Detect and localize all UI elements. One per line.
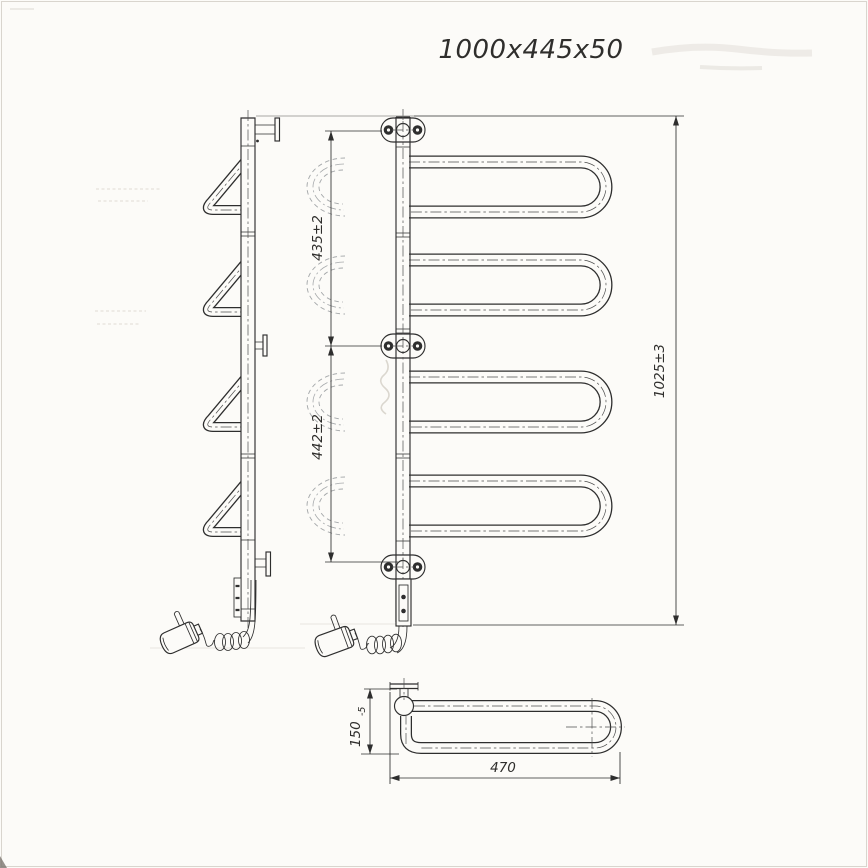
side-wall-stud-bottom <box>255 552 271 576</box>
dim-label-lower-span: 442±2 <box>310 414 326 460</box>
technical-drawing-canvas: 1000x445x50 <box>0 0 868 868</box>
front-power-cord <box>355 626 407 654</box>
scan-artifacts <box>0 2 867 868</box>
phantom-swing-arcs <box>307 158 345 535</box>
heater-control-box <box>396 579 411 626</box>
side-view <box>152 110 280 656</box>
scanned-drawing-page: 1000x445x50 <box>0 0 868 868</box>
towel-loop-2 <box>409 260 606 310</box>
heating-element <box>234 578 241 617</box>
dim-label-depth: 150 <box>348 721 364 747</box>
faint-scribble <box>381 360 389 414</box>
power-plug-icon <box>308 610 360 659</box>
top-view <box>390 678 625 757</box>
dim-label-overall-height: 1025±3 <box>652 344 668 398</box>
drawing-title: 1000x445x50 <box>438 35 623 65</box>
scan-edge-frame <box>2 2 867 867</box>
side-wall-stud-middle <box>255 335 267 356</box>
side-wall-stud-top <box>255 118 280 142</box>
dim-label-length: 470 <box>490 760 516 776</box>
dim-label-upper-span: 435±2 <box>310 215 326 261</box>
front-view <box>307 109 606 659</box>
top-view-loop <box>406 698 625 757</box>
dim-depth: 150 -5 <box>348 689 399 754</box>
towel-loop-1 <box>409 162 606 212</box>
towel-loop-3 <box>409 377 606 427</box>
towel-loop-4 <box>409 481 606 531</box>
side-post <box>241 110 255 628</box>
dim-label-depth-tolerance: -5 <box>357 707 368 716</box>
front-post <box>396 109 410 630</box>
smudge <box>652 47 812 53</box>
dim-upper-span: 435±2 <box>310 131 382 346</box>
